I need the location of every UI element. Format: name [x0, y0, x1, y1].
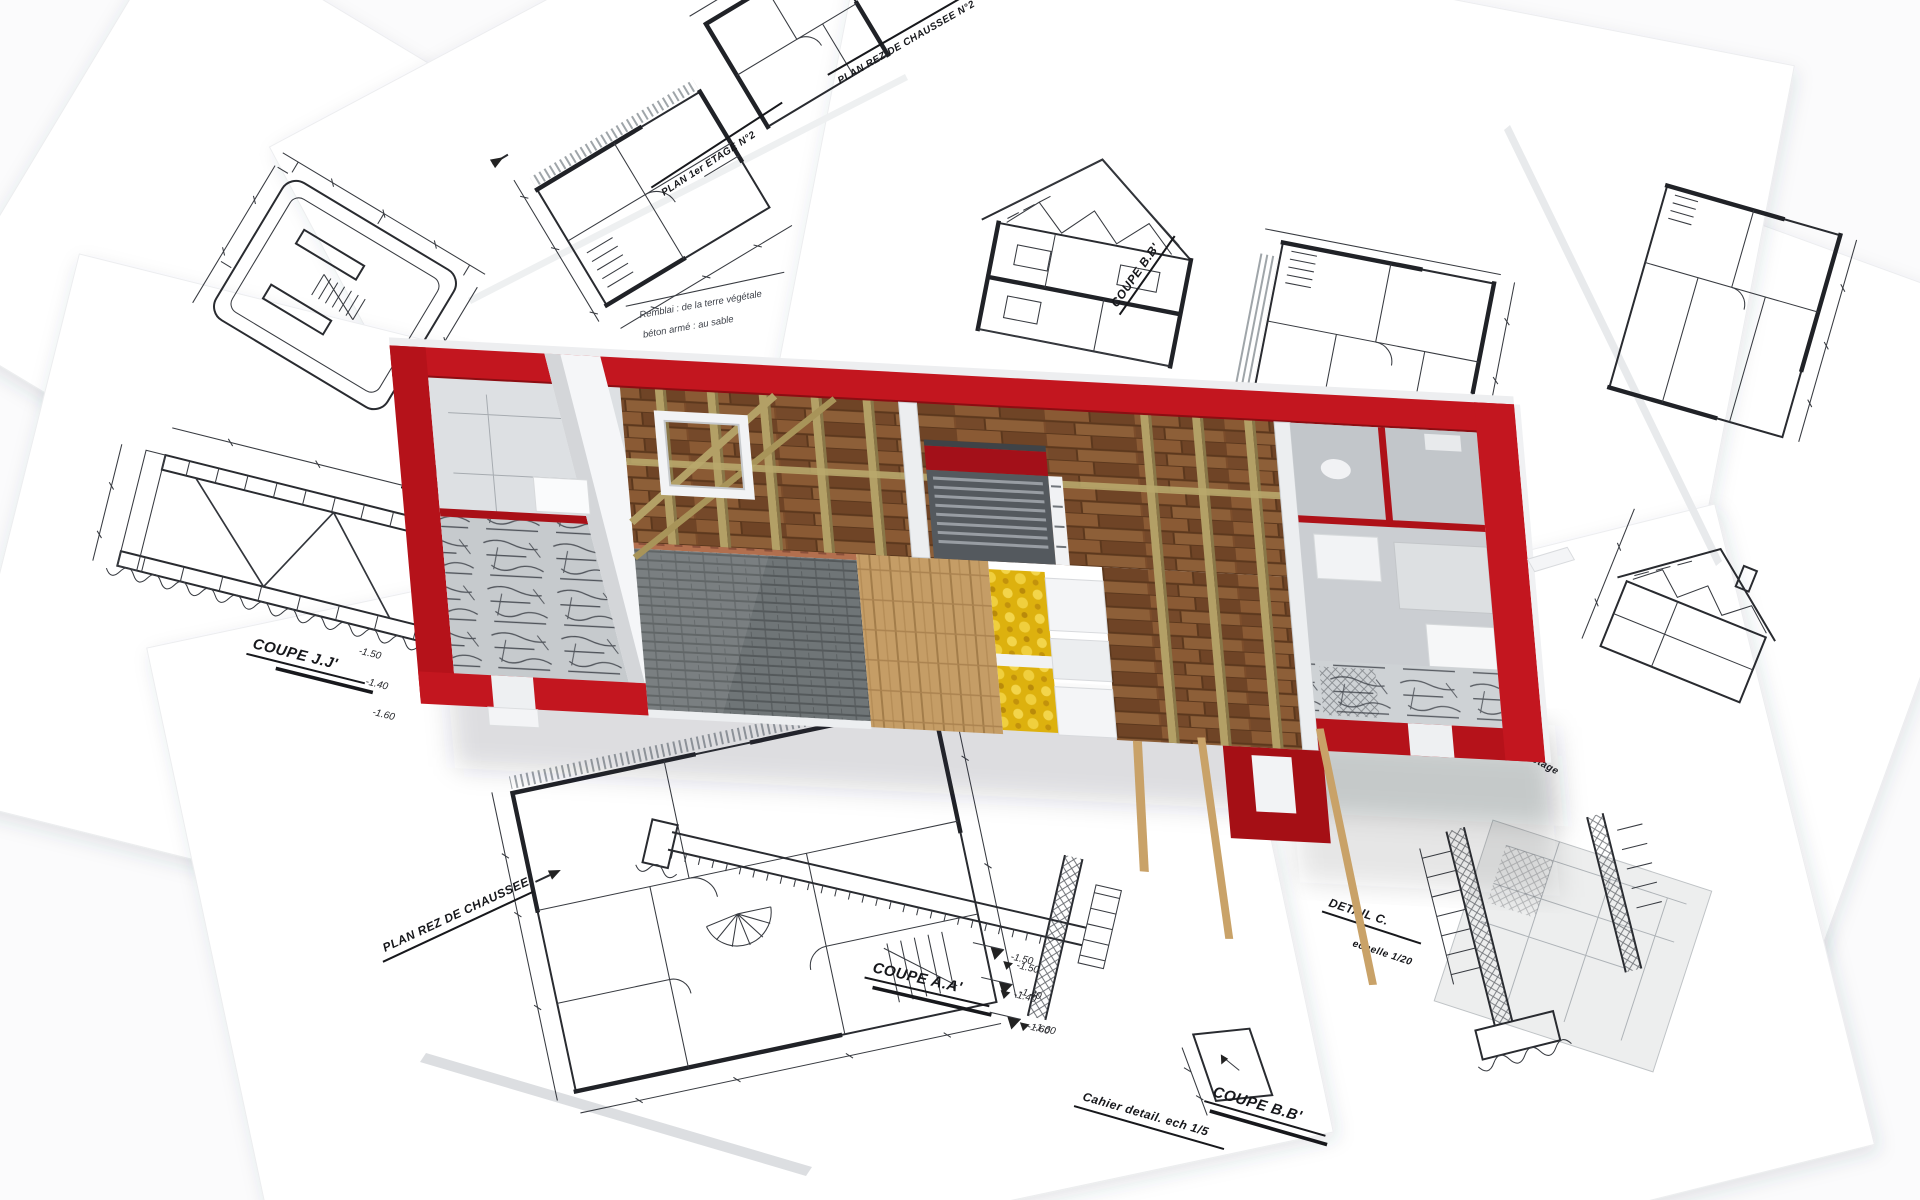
door-leaf-open [488, 707, 540, 728]
room-bottom-right-blueprint-floor [1311, 660, 1503, 728]
bathroom [1290, 423, 1485, 532]
wallpaper-image: -1.50 -1.40 -1.60 -1.50 -1.40 -1.60 [0, 0, 1920, 1200]
